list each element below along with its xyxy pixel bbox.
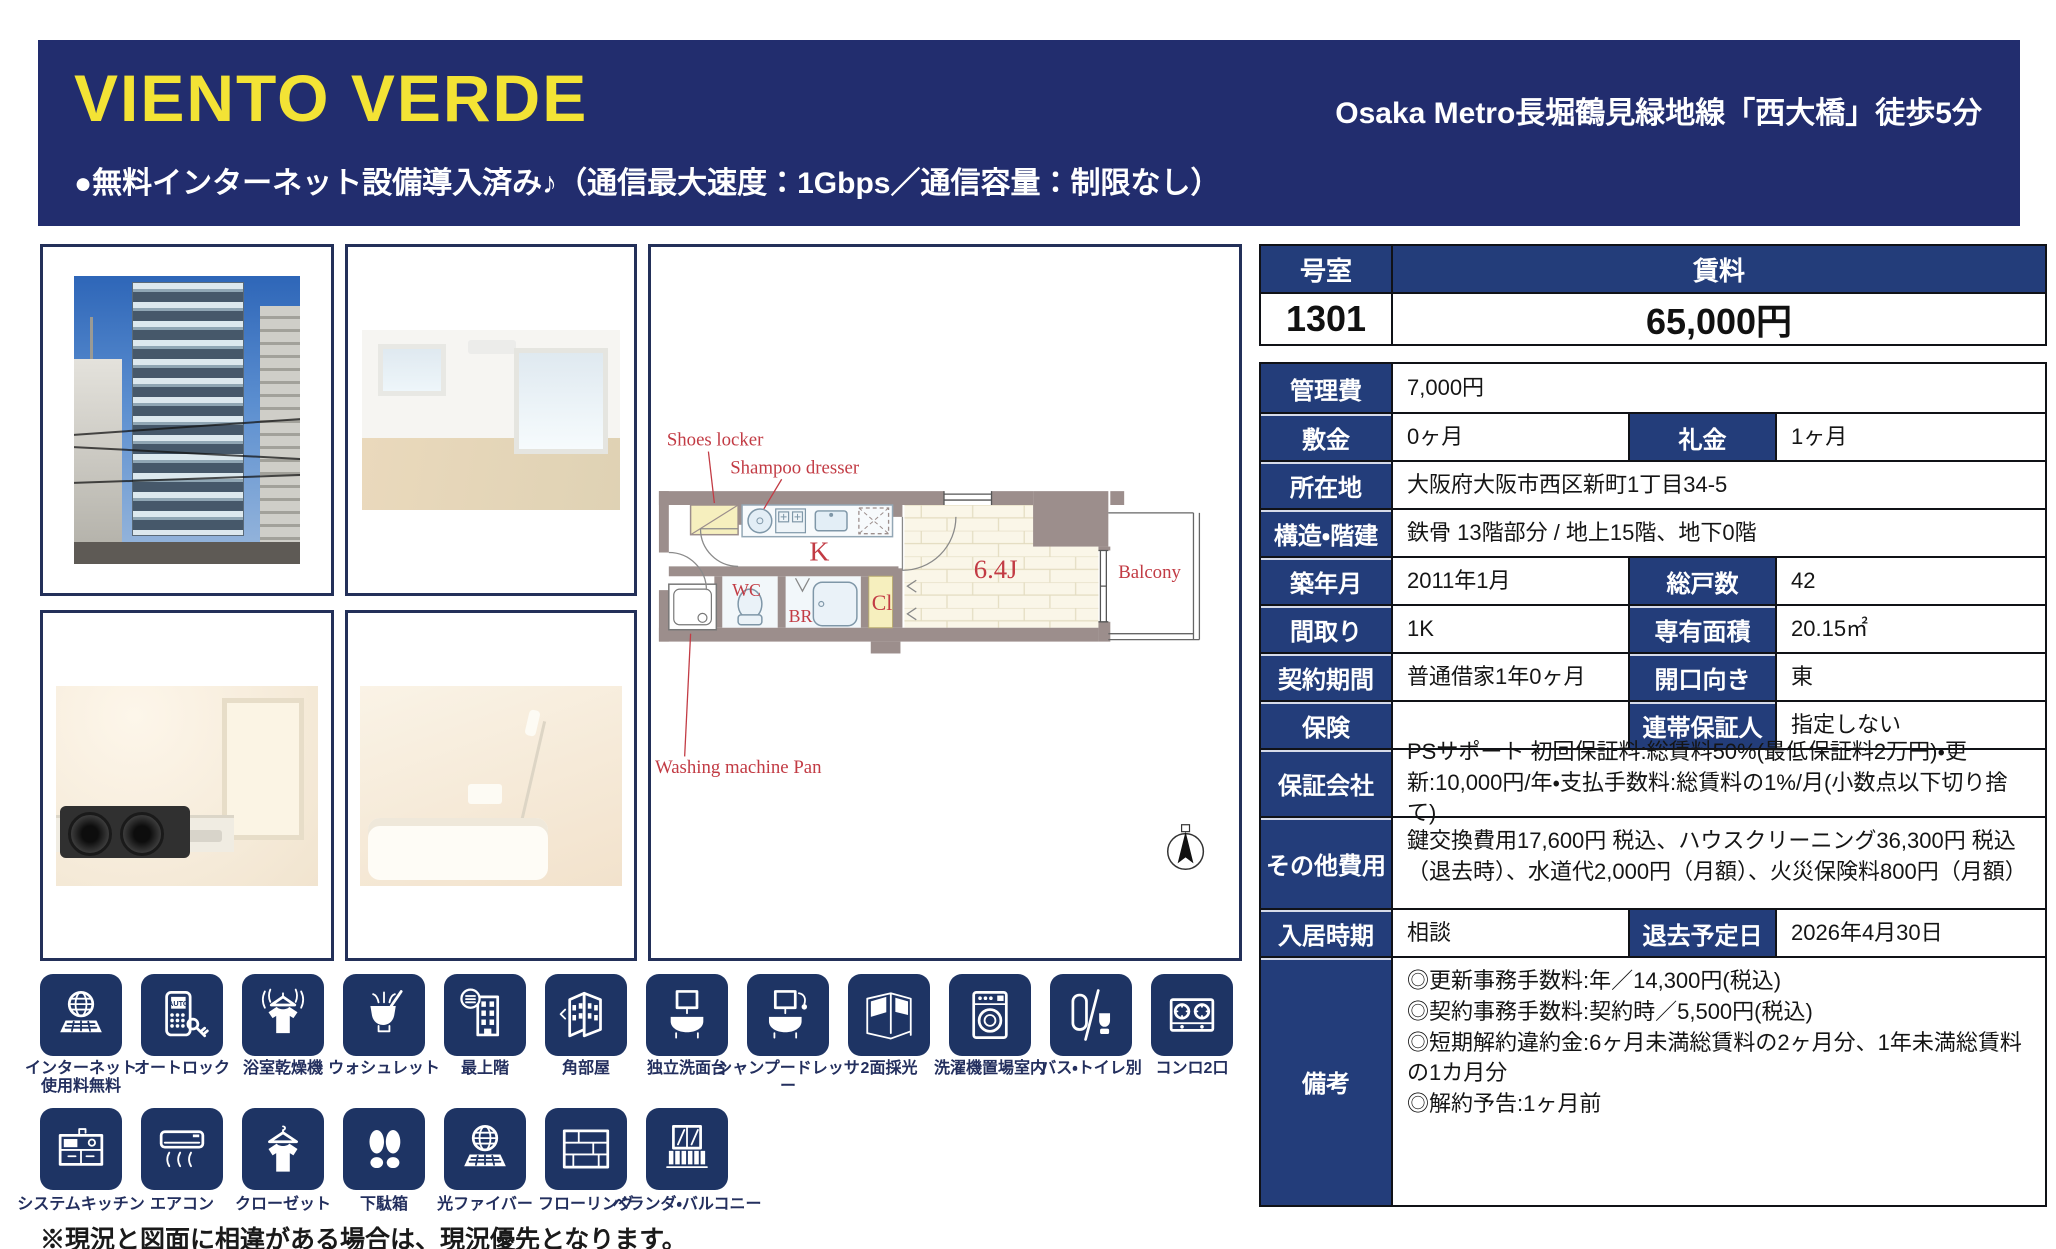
floorplan: Shoes locker Shampoo dresser Washing mac… <box>651 247 1239 958</box>
photo-box-bathroom <box>345 610 637 961</box>
row-value: PSサポート 初回保証料:総賃料50%(最低保証料2万円)・更新:10,000円… <box>1391 750 2045 816</box>
table-row: 入居時期 相談 退去予定日 2026年4月30日 <box>1261 908 2045 956</box>
label-room-size: 6.4J <box>974 554 1018 584</box>
row-value: 7,000円 <box>1391 364 2045 412</box>
row-label: 保証会社 <box>1261 750 1391 816</box>
washing-machine-pan <box>669 584 717 630</box>
row-value: 0ヶ月 <box>1391 414 1628 460</box>
feature-tile-top-floor <box>444 974 526 1056</box>
row-label: 間取り <box>1261 606 1391 652</box>
row-value: 東 <box>1775 654 2045 700</box>
shampoo-dresser-icon <box>759 986 817 1044</box>
feature-label: コンロ2口 <box>1117 1060 1267 1078</box>
photo-living-room <box>362 330 620 510</box>
kitchen-fixtures <box>742 505 892 537</box>
feature-label: ベランダ・バルコニー <box>612 1196 762 1214</box>
separate-bath-toilet-icon <box>1062 986 1120 1044</box>
table-row: 保証会社 PSサポート 初回保証料:総賃料50%(最低保証料2万円)・更新:10… <box>1261 748 2045 816</box>
label-kitchen: K <box>809 535 829 566</box>
shoe-box-icon <box>355 1120 413 1178</box>
aircon-icon <box>153 1120 211 1178</box>
page-title: VIENTO VERDE <box>74 60 588 136</box>
row-value: 2026年4月30日 <box>1775 910 2045 956</box>
flooring-icon <box>557 1120 615 1178</box>
small-window <box>378 344 446 396</box>
aircon-unit <box>468 340 516 354</box>
row-label: 総戸数 <box>1628 558 1775 604</box>
table-row: 敷金 0ヶ月 礼金 1ヶ月 <box>1261 412 2045 460</box>
row-label: 管理費 <box>1261 364 1391 412</box>
row-label: 入居時期 <box>1261 910 1391 956</box>
row-value: 1ヶ月 <box>1775 414 2045 460</box>
feature-tile-bathroom-dryer <box>242 974 324 1056</box>
feature-tile-aircon <box>141 1108 223 1190</box>
feature-tile-two-side-light <box>848 974 930 1056</box>
row-value: 42 <box>1775 558 2045 604</box>
table-row: 備考 ◎更新事務手数料:年／14,300円(税込) ◎契約事務手数料:契約時／5… <box>1261 956 2045 1205</box>
row-label: 専有面積 <box>1628 606 1775 652</box>
feature-tile-flooring <box>545 1108 627 1190</box>
photo-building-exterior <box>74 276 300 564</box>
feature-tile-corner-room <box>545 974 627 1056</box>
feature-tile-two-burner-stove <box>1151 974 1233 1056</box>
shower-head <box>524 709 541 737</box>
shower-hose <box>519 721 546 827</box>
row-value: 相談 <box>1391 910 1628 956</box>
header-band: VIENTO VERDE Osaka Metro長堀鶴見緑地線「西大橋」徒歩5分… <box>38 40 2020 226</box>
washing-machine-icon <box>961 986 1019 1044</box>
vanity-icon <box>658 986 716 1044</box>
table-row: 管理費 7,000円 <box>1261 364 2045 412</box>
autolock-icon: AUTO <box>153 986 211 1044</box>
bathtub <box>813 582 857 626</box>
feature-tile-system-kitchen <box>40 1108 122 1190</box>
label-shampoo-dresser: Shampoo dresser <box>730 457 860 478</box>
row-label: 所在地 <box>1261 462 1391 508</box>
floorplan-box: Shoes locker Shampoo dresser Washing mac… <box>648 244 1242 961</box>
label-wc: WC <box>732 580 761 600</box>
photo-bathroom <box>360 686 622 886</box>
two-side-light-icon <box>860 986 918 1044</box>
feature-tile-separate-bath-toilet <box>1050 974 1132 1056</box>
internet-feature-text: ●無料インターネット設備導入済み♪（通信最大速度：1Gbps／通信容量：制限なし… <box>74 158 1220 202</box>
photo-box-room <box>345 244 637 596</box>
corner-room-icon <box>557 986 615 1044</box>
neighbor-building-left <box>74 359 122 564</box>
burner <box>68 812 112 856</box>
burner <box>120 812 164 856</box>
bath-control-panel <box>468 784 502 804</box>
veranda-balcony-icon <box>658 1120 716 1178</box>
balcony-window <box>514 348 608 454</box>
table-row: 築年月 2011年1月 総戸数 42 <box>1261 556 2045 604</box>
svg-text:AUTO: AUTO <box>168 999 189 1008</box>
feature-tile-optical-fiber <box>444 1108 526 1190</box>
rent-value: 65,000円 <box>1391 294 2045 344</box>
closet-icon <box>254 1120 312 1178</box>
kitchen-door <box>222 698 304 840</box>
row-value: 普通借家1年0ヶ月 <box>1391 654 1628 700</box>
rent-header: 賃料 <box>1391 246 2045 292</box>
row-label: 礼金 <box>1628 414 1775 460</box>
antenna <box>90 317 93 359</box>
bathroom-dryer-icon <box>254 986 312 1044</box>
row-value: 鉄骨 13階部分 / 地上15階、地下0階 <box>1391 510 2045 556</box>
row-label: 備考 <box>1261 958 1391 1205</box>
row-label: 築年月 <box>1261 558 1391 604</box>
footer-note: ※現況と図面に相違がある場合は、現況優先となります。 <box>40 1220 687 1249</box>
row-value: ◎更新事務手数料:年／14,300円(税込) ◎契約事務手数料:契約時／5,50… <box>1391 958 2045 1205</box>
row-label: 構造・階建 <box>1261 510 1391 556</box>
summary-table: 号室 賃料 1301 65,000円 <box>1259 244 2047 346</box>
table-row: その他費用 鍵交換費用17,600円 税込、ハウスクリーニング36,300円 税… <box>1261 816 2045 908</box>
label-balcony: Balcony <box>1118 562 1181 583</box>
internet-icon <box>52 986 110 1044</box>
row-value: 1K <box>1391 606 1628 652</box>
row-value: 大阪府大阪市西区新町1丁目34-5 <box>1391 462 2045 508</box>
feature-tile-internet <box>40 974 122 1056</box>
row-label: 退去予定日 <box>1628 910 1775 956</box>
feature-tile-shoe-box <box>343 1108 425 1190</box>
room-no-header: 号室 <box>1261 246 1391 292</box>
row-label: 契約期間 <box>1261 654 1391 700</box>
row-label: その他費用 <box>1261 818 1391 908</box>
top-floor-icon <box>456 986 514 1044</box>
bathtub <box>368 818 548 880</box>
feature-tile-veranda-balcony <box>646 1108 728 1190</box>
photo-box-building <box>40 244 334 596</box>
room-no-value: 1301 <box>1261 294 1391 344</box>
row-label: 敷金 <box>1261 414 1391 460</box>
details-table: 管理費 7,000円 敷金 0ヶ月 礼金 1ヶ月 所在地 大阪府大阪市西区新町1… <box>1259 362 2047 1207</box>
label-washing-machine-pan: Washing machine Pan <box>655 757 822 778</box>
row-label: 保険 <box>1261 702 1391 748</box>
property-flyer: VIENTO VERDE Osaka Metro長堀鶴見緑地線「西大橋」徒歩5分… <box>0 0 2056 1249</box>
two-burner-stove-icon <box>1163 986 1221 1044</box>
gas-stove <box>60 806 190 858</box>
photo-kitchen <box>56 686 318 886</box>
station-access-text: Osaka Metro長堀鶴見緑地線「西大橋」徒歩5分 <box>1335 88 1982 132</box>
label-bathroom: BR <box>789 606 813 626</box>
table-row: 契約期間 普通借家1年0ヶ月 開口向き 東 <box>1261 652 2045 700</box>
feature-tile-autolock: AUTO <box>141 974 223 1056</box>
table-row: 構造・階建 鉄骨 13階部分 / 地上15階、地下0階 <box>1261 508 2045 556</box>
feature-tile-shampoo-dresser <box>747 974 829 1056</box>
table-row: 間取り 1K 専有面積 20.15㎡ <box>1261 604 2045 652</box>
label-closet: Cl <box>872 591 893 615</box>
row-label: 開口向き <box>1628 654 1775 700</box>
feature-tile-vanity <box>646 974 728 1056</box>
table-row: 所在地 大阪府大阪市西区新町1丁目34-5 <box>1261 460 2045 508</box>
feature-tile-washlet <box>343 974 425 1056</box>
street <box>74 542 300 564</box>
washlet-icon <box>355 986 413 1044</box>
feature-tile-washing-machine <box>949 974 1031 1056</box>
main-tower <box>132 282 244 536</box>
optical-fiber-icon <box>456 1120 514 1178</box>
label-shoes-locker: Shoes locker <box>667 430 764 451</box>
photo-box-kitchen <box>40 610 334 961</box>
feature-tile-closet <box>242 1108 324 1190</box>
row-value: 2011年1月 <box>1391 558 1628 604</box>
row-value: 20.15㎡ <box>1775 606 2045 652</box>
neighbor-building-right <box>260 306 300 564</box>
row-value: 鍵交換費用17,600円 税込、ハウスクリーニング36,300円 税込（退去時）… <box>1391 818 2045 908</box>
system-kitchen-icon <box>52 1120 110 1178</box>
compass-icon <box>1168 825 1204 870</box>
